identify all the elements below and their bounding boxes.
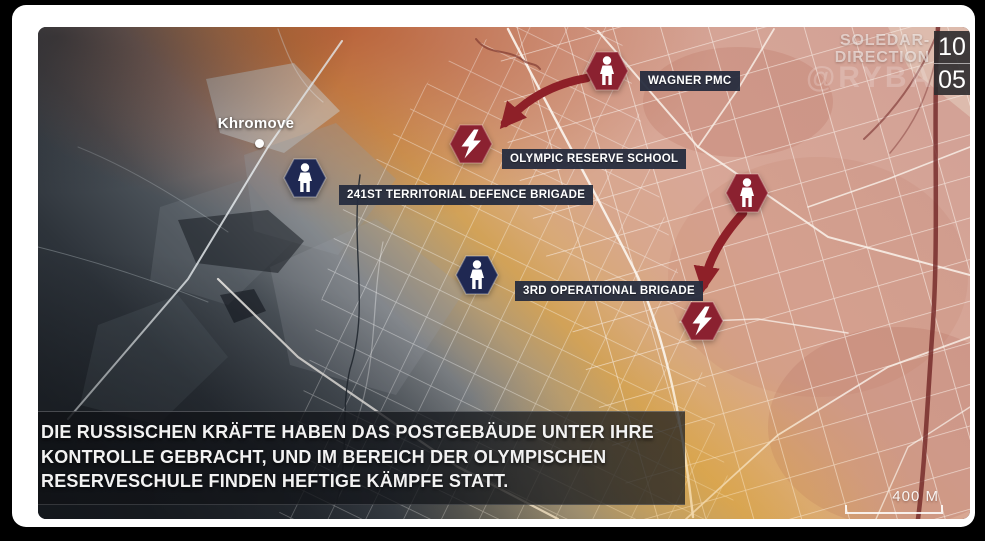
date-badge: 10 05: [934, 31, 970, 95]
ukrainian-unit-marker-241st: [282, 157, 328, 199]
date-month: 05: [934, 63, 970, 96]
town-label-khromove: Khromove: [198, 115, 314, 132]
date-day: 10: [934, 31, 970, 63]
caption-line: KONTROLLE GEBRACHT, UND IM BEREICH DER O…: [41, 445, 677, 470]
wagner-unit-marker-north: [584, 50, 630, 92]
soldier-icon: [584, 50, 630, 92]
soldier-icon: [724, 172, 770, 214]
wagner-unit-marker-east: [724, 172, 770, 214]
label-olympic-reserve-school: OLYMPIC RESERVE SCHOOL: [502, 149, 686, 169]
lightning-icon: [448, 123, 494, 165]
direction-title: SOLEDAR- DIRECTION: [835, 33, 930, 66]
ukrainian-unit-marker-3rd: [454, 254, 500, 296]
caption-line: DIE RUSSISCHEN KRÄFTE HABEN DAS POSTGEBÄ…: [41, 420, 677, 445]
caption-box: DIE RUSSISCHEN KRÄFTE HABEN DAS POSTGEBÄ…: [38, 411, 685, 505]
scale-bar: [845, 505, 943, 514]
clash-marker-south: [679, 300, 725, 342]
clash-marker-olympic-school: [448, 123, 494, 165]
direction-line2: DIRECTION: [835, 50, 930, 67]
soldier-icon: [454, 254, 500, 296]
label-wagner-pmc: WAGNER PMC: [640, 71, 740, 91]
soldier-icon: [282, 157, 328, 199]
map-canvas: Khromove: [38, 27, 970, 519]
label-3rd-brigade: 3RD OPERATIONAL BRIGADE: [515, 281, 703, 301]
caption-line: RESERVESCHULE FINDEN HEFTIGE KÄMPFE STAT…: [41, 469, 677, 494]
scale-label: 400 M: [892, 488, 939, 505]
direction-line1: SOLEDAR-: [835, 33, 930, 50]
photo-frame: Khromove: [12, 5, 975, 527]
label-241st-brigade: 241ST TERRITORIAL DEFENCE BRIGADE: [339, 185, 593, 205]
town-dot: [255, 139, 264, 148]
lightning-icon: [679, 300, 725, 342]
